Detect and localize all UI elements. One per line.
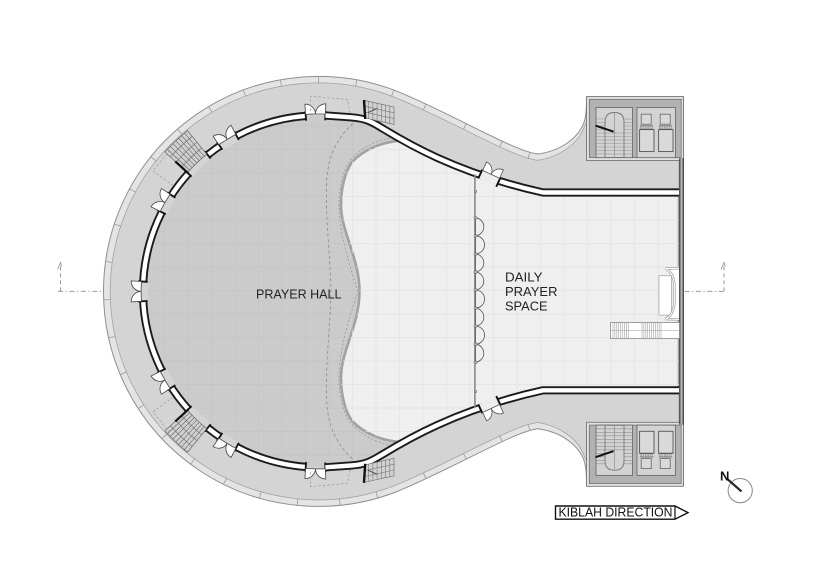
svg-text:N: N: [720, 469, 729, 484]
svg-text:KIBLAH DIRECTION: KIBLAH DIRECTION: [559, 505, 673, 520]
svg-text:SPACE: SPACE: [505, 299, 548, 314]
svg-text:DAILY: DAILY: [505, 270, 543, 285]
svg-text:PRAYER: PRAYER: [505, 284, 558, 299]
svg-text:PRAYER HALL: PRAYER HALL: [256, 287, 342, 302]
